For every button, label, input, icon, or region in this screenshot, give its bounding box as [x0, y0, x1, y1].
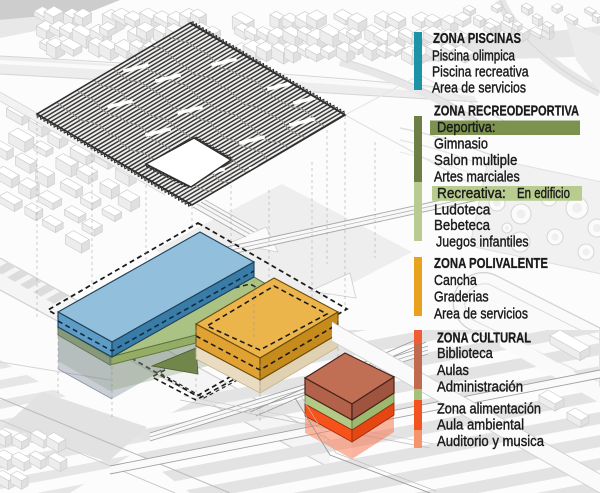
svg-text:Gimnasio: Gimnasio	[434, 137, 488, 153]
svg-text:Artes marciales: Artes marciales	[434, 169, 520, 185]
svg-text:En edificio: En edificio	[517, 186, 570, 202]
svg-text:Juegos infantiles: Juegos infantiles	[436, 234, 529, 250]
svg-text:ZONA PISCINAS: ZONA PISCINAS	[433, 31, 521, 47]
svg-text:Salon multiple: Salon multiple	[434, 153, 517, 169]
svg-text:Zona alimentación: Zona alimentación	[437, 401, 541, 417]
svg-text:Auditorio y musica: Auditorio y musica	[437, 434, 545, 450]
svg-text:Graderias: Graderias	[434, 290, 489, 306]
svg-text:Aulas: Aulas	[437, 363, 469, 379]
svg-text:Area de servicios: Area de servicios	[432, 80, 526, 96]
svg-text:ZONA RECREODEPORTIVA: ZONA RECREODEPORTIVA	[434, 104, 579, 120]
svg-text:ZONA CULTURAL: ZONA CULTURAL	[437, 331, 531, 347]
svg-text:Biblioteca: Biblioteca	[437, 346, 493, 362]
svg-text:Piscina recreativa: Piscina recreativa	[432, 64, 529, 80]
svg-text:ZONA POLIVALENTE: ZONA POLIVALENTE	[434, 256, 548, 272]
svg-text:Deportiva:: Deportiva:	[437, 120, 496, 136]
svg-text:Administración: Administración	[437, 379, 523, 395]
svg-text:Bebeteca: Bebeteca	[434, 218, 491, 234]
svg-text:Cancha: Cancha	[434, 273, 477, 289]
svg-text:Piscina olimpica: Piscina olimpica	[432, 48, 516, 64]
svg-text:Recreativa:: Recreativa:	[437, 186, 506, 202]
svg-text:Ludoteca: Ludoteca	[434, 203, 491, 219]
svg-text:Area de servicios: Area de servicios	[434, 307, 528, 323]
svg-text:Aula ambiental: Aula ambiental	[437, 418, 524, 434]
